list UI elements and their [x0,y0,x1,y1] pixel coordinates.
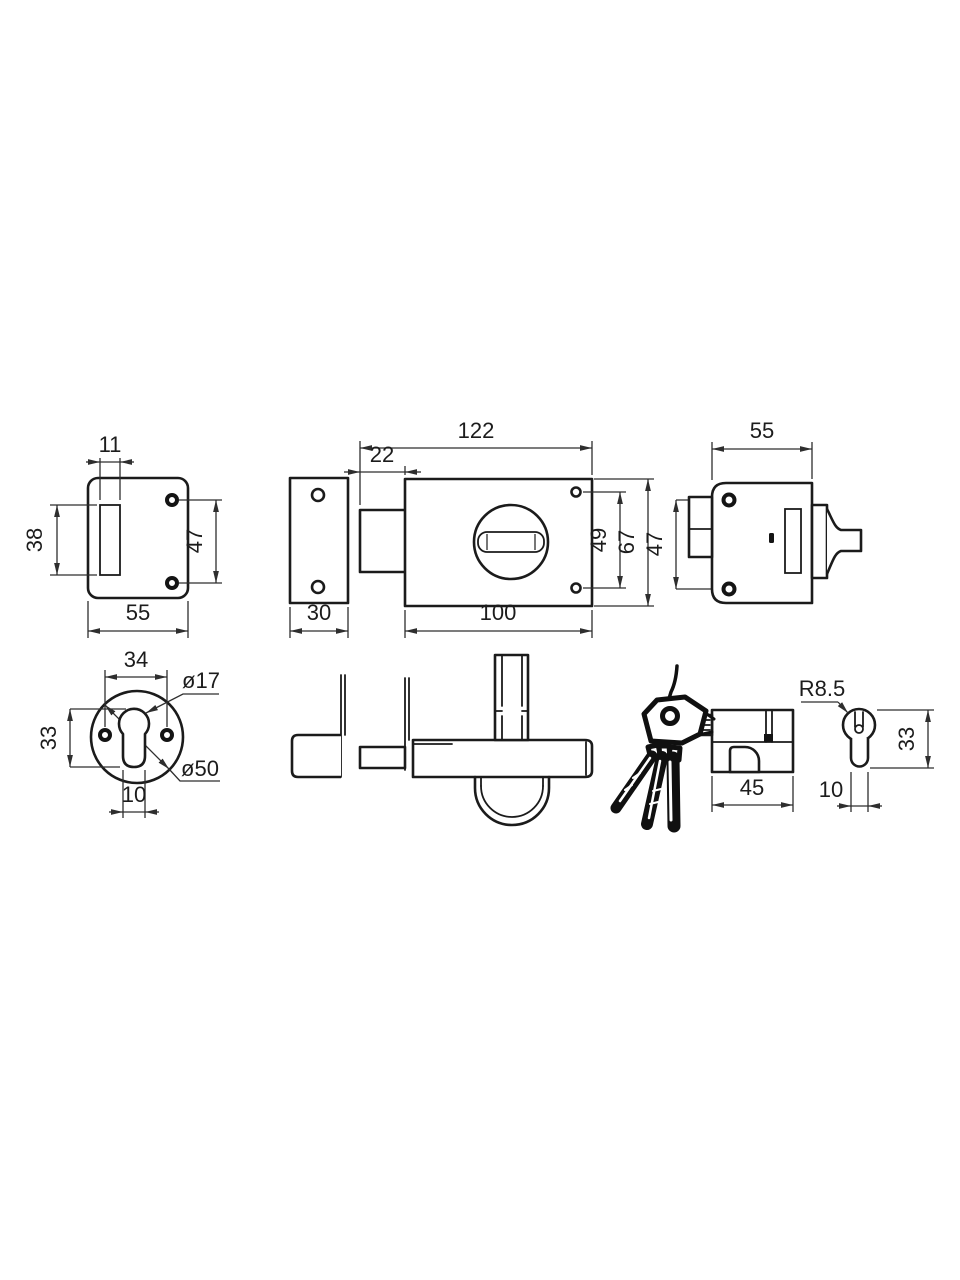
strike-plate-side-flange [341,675,345,777]
dim-cylinder-radius: R8.5 [799,676,845,701]
case-screw-hole-bottom [572,584,581,593]
dim-overall-length: 122 [458,418,495,443]
key-ring-hole [663,709,678,724]
dim-keyway-width: 10 [819,777,843,802]
strike-plate-side-box [292,735,341,777]
lock-rear-dimensions: 55 [712,418,812,480]
dim-profile-height: 33 [894,727,919,751]
lock-front-view: 122 22 49 67 47 100 30 [290,418,722,638]
strike-screw-hole-bottom [167,578,177,588]
faceplate-hole-bottom [312,581,324,593]
cylinder-housing [812,505,827,578]
strike-plate-view: 11 38 47 55 [22,432,222,638]
dim-case-hole-spacing: 49 [586,528,611,552]
faceplate-hole-top [312,489,324,501]
rear-screw-hole-top [724,495,735,506]
escutcheon-screw-hole-right [162,730,172,740]
dim-escutcheon-diameter: ø50 [181,756,219,781]
dim-keyhole-slot-width: 10 [122,782,146,807]
key-bunch [616,666,714,826]
cylinder-end-view: R8.5 33 10 [799,676,934,812]
key-blade-right [673,758,674,826]
dim-cylinder-length: 45 [740,775,764,800]
bolt-side [360,747,405,768]
dim-escutcheon-hole-spacing: 34 [124,647,148,672]
dim-keyhole-height: 33 [36,726,61,750]
dim-body-length: 100 [480,600,517,625]
dim-strike-hole-spacing: 47 [182,529,207,553]
dim-rear-body-width: 55 [750,418,774,443]
cylinder-taper [827,509,861,574]
case-screw-hole-top [572,488,581,497]
lock-drawing-svg: 11 38 47 55 122 [0,0,960,1280]
escutcheon-screw-hole-left [100,730,110,740]
bolt-front [360,510,405,572]
thumbturn [474,505,548,579]
dim-strike-plate-width: 55 [126,600,150,625]
strike-screw-hole-top [167,495,177,505]
keyhole [119,709,149,767]
lock-side-view [292,655,592,825]
rear-screw-hole-bottom [724,584,735,595]
dim-strike-slot-width: 11 [99,432,122,457]
cylinder-shaft-side [495,655,528,740]
cylinder-side-dimensions: 45 [712,775,793,812]
cam-slot-notch [764,734,773,742]
escutcheon-view: 34 ø17 ø50 33 10 [36,647,220,818]
dim-rear-hole-spacing: 47 [642,532,667,556]
rear-indicator-mark [769,533,774,543]
bolt-rear [689,497,712,557]
dim-faceplate-width: 30 [307,600,331,625]
cylinder-profile-slot [851,738,868,767]
cylinder-side-view: 45 [616,666,793,826]
lock-case-side [413,740,592,777]
cylinder-cam [730,747,759,772]
dim-keyhole-diameter: ø17 [182,668,220,693]
lock-rear-view: 55 [689,418,861,603]
dim-body-height: 67 [614,530,639,554]
dim-bolt-throw: 22 [370,442,394,467]
technical-drawing-page: 11 38 47 55 122 [0,0,960,1280]
dim-strike-slot-height: 38 [22,528,47,552]
